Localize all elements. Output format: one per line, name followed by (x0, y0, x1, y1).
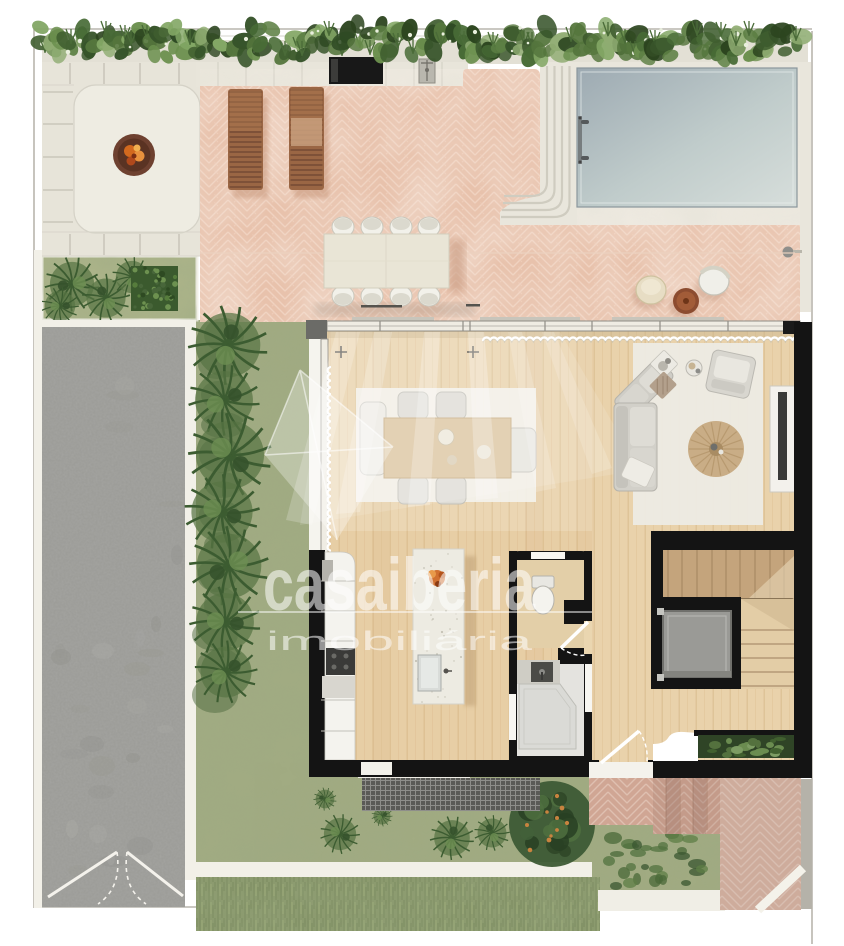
svg-text:imobiliária: imobiliária (266, 626, 534, 656)
svg-text:casaiberia: casaiberia (263, 543, 536, 626)
